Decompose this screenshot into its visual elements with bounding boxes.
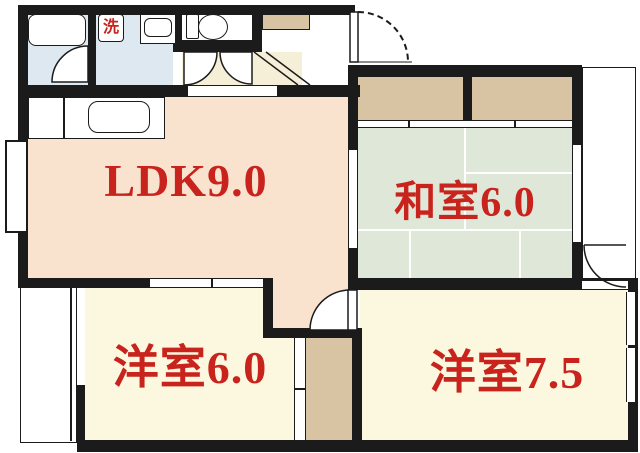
washing-machine-label: 洗 <box>103 20 119 36</box>
western-room-2-door-arc <box>310 290 350 330</box>
western-room-1-label: 洋室6.0 <box>113 345 268 391</box>
japanese-room-label: 和室6.0 <box>394 182 536 224</box>
entry-door-swing-arc <box>358 12 408 62</box>
western-room-2-door-leaf <box>348 290 357 330</box>
floor-plan: LDK9.0 和室6.0 洋室6.0 洋室7.5 洗 <box>0 0 640 453</box>
bath-door-arc <box>52 46 88 82</box>
entry-step-line <box>254 52 298 85</box>
hall-door-arc-2 <box>220 52 252 84</box>
hall-door-arc-1 <box>184 52 217 85</box>
balcony-door-arc <box>584 245 626 287</box>
entry-step-line <box>266 52 310 85</box>
entry-door-leaf <box>350 12 358 62</box>
ldk-label: LDK9.0 <box>104 158 267 204</box>
western-room-2-label: 洋室7.5 <box>430 350 585 396</box>
